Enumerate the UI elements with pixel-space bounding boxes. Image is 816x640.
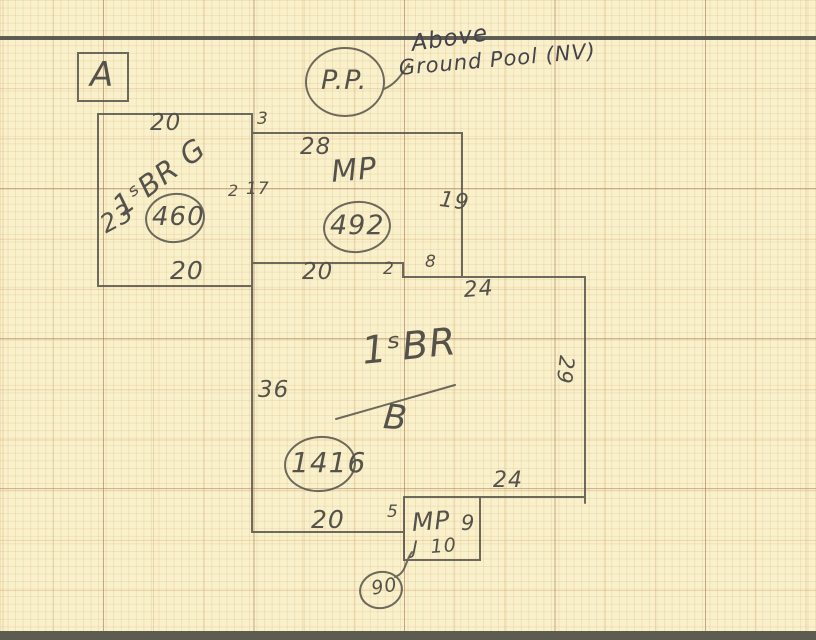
mp-upper-right-dim: 19 [438, 189, 471, 215]
main-left-dim: 36 [258, 379, 289, 402]
mp-upper-top-dim: 28 [300, 136, 331, 159]
main-right-dim: 29 [553, 354, 577, 385]
mp-upper-name: MP [330, 154, 378, 188]
mp-upper-area: 492 [330, 212, 385, 239]
garage-top-dim: 20 [150, 112, 181, 135]
graph-paper-sheet: A P.P. Above Ground Pool (NV) 20 3 1ˢBR … [0, 0, 816, 640]
mp-lower-right-dim: 9 [461, 513, 475, 534]
main-top-dim: 20 [302, 261, 333, 284]
mp-lower-bottom-dim: 10 [430, 536, 457, 557]
mp-upper-left-outer-dim: 2 [228, 183, 239, 199]
main-name-denominator: B [382, 400, 409, 436]
garage-area: 460 [152, 204, 205, 230]
pool-circle-label: P.P. [321, 67, 367, 94]
mp-upper-left-dim: 17 [246, 181, 270, 198]
zone-label: A [90, 58, 114, 92]
garage-offset-dim: 3 [257, 111, 269, 128]
mp-lower-name: MP [411, 507, 451, 535]
main-bottom-step-dim: 5 [387, 504, 399, 521]
main-name-numerator: 1ˢBR [360, 322, 458, 370]
main-bottom-dim: 20 [311, 507, 345, 532]
main-lower-right-dim: 24 [493, 470, 523, 492]
main-upper-right-dim: 24 [463, 278, 494, 302]
sketch-linework [0, 0, 816, 640]
main-area: 1416 [291, 449, 366, 477]
garage-bottom-dim: 20 [170, 258, 204, 283]
main-step-dim: 2 [383, 261, 395, 278]
main-jog-dim: 8 [425, 254, 437, 271]
mp-lower-area: 90 [370, 575, 399, 598]
mp-lower-hook: J [412, 539, 419, 558]
